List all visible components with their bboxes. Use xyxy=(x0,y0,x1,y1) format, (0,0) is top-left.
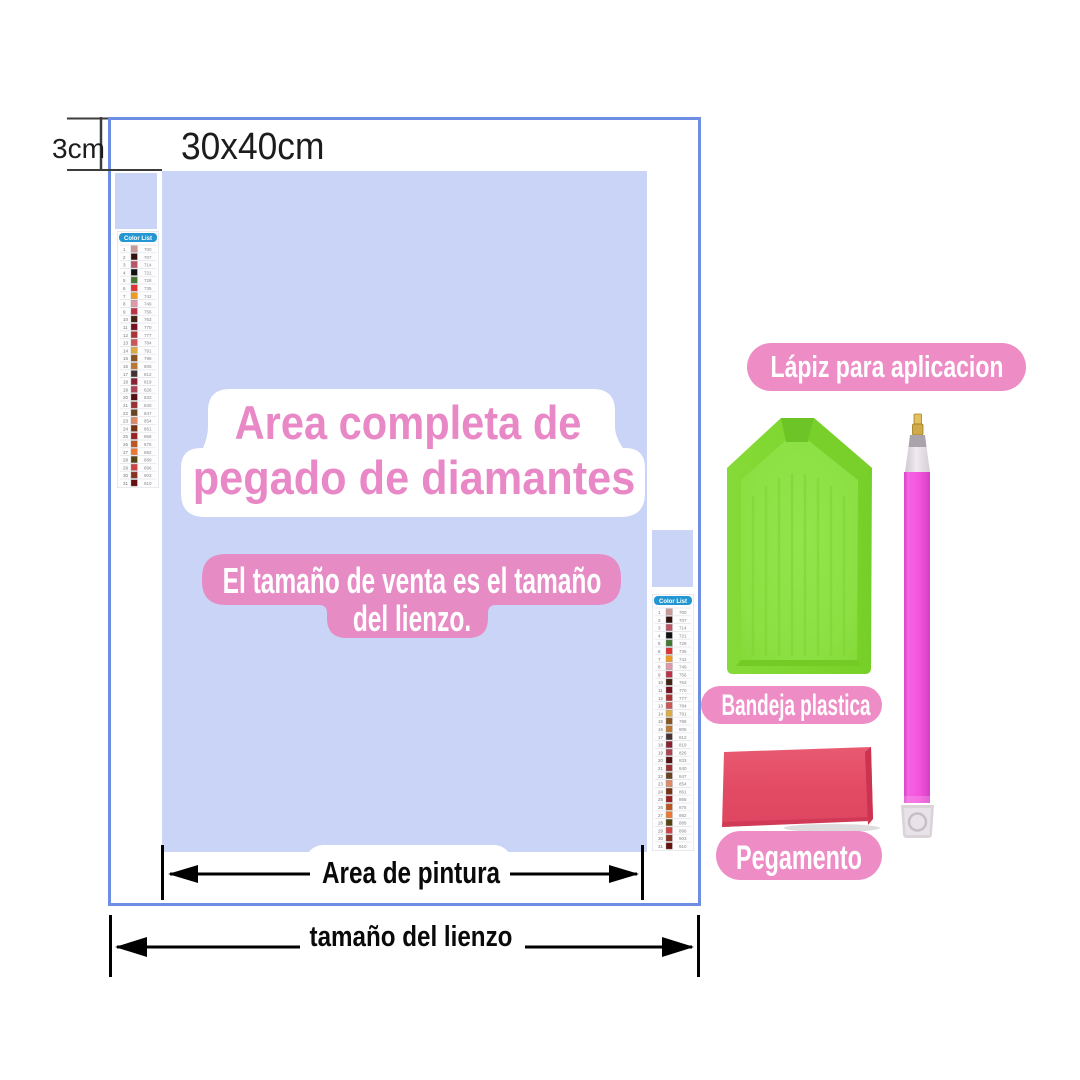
svg-text:28: 28 xyxy=(658,821,664,826)
svg-text:798: 798 xyxy=(144,356,152,361)
svg-text:20: 20 xyxy=(123,395,129,400)
svg-text:22: 22 xyxy=(658,774,664,779)
svg-text:19: 19 xyxy=(123,387,129,392)
svg-text:770: 770 xyxy=(144,325,152,330)
svg-text:805: 805 xyxy=(679,727,687,732)
svg-text:903: 903 xyxy=(144,473,152,478)
svg-text:742: 742 xyxy=(679,657,687,662)
svg-text:854: 854 xyxy=(144,419,152,424)
svg-text:735: 735 xyxy=(144,286,152,291)
svg-text:882: 882 xyxy=(679,813,687,818)
svg-text:28: 28 xyxy=(123,458,129,463)
svg-text:30: 30 xyxy=(123,473,129,478)
svg-text:721: 721 xyxy=(144,270,152,275)
svg-text:17: 17 xyxy=(123,372,129,377)
svg-text:20: 20 xyxy=(658,758,664,763)
svg-text:763: 763 xyxy=(679,680,687,685)
svg-text:29: 29 xyxy=(123,465,129,470)
svg-text:10: 10 xyxy=(123,317,129,322)
svg-text:18: 18 xyxy=(123,380,129,385)
svg-text:19: 19 xyxy=(658,750,664,755)
svg-text:840: 840 xyxy=(144,403,152,408)
svg-text:728: 728 xyxy=(144,278,152,283)
svg-text:21: 21 xyxy=(123,403,129,408)
svg-text:721: 721 xyxy=(679,633,687,638)
svg-text:700: 700 xyxy=(679,610,687,615)
svg-text:819: 819 xyxy=(144,380,152,385)
svg-text:25: 25 xyxy=(123,434,129,439)
svg-text:791: 791 xyxy=(144,348,152,353)
svg-text:17: 17 xyxy=(658,735,664,740)
svg-text:784: 784 xyxy=(144,341,152,346)
svg-text:819: 819 xyxy=(679,743,687,748)
svg-text:29: 29 xyxy=(658,828,664,833)
svg-text:23: 23 xyxy=(658,782,664,787)
svg-text:714: 714 xyxy=(144,263,152,268)
svg-text:12: 12 xyxy=(123,333,129,338)
svg-text:31: 31 xyxy=(123,481,129,486)
svg-text:896: 896 xyxy=(679,828,687,833)
svg-text:14: 14 xyxy=(123,348,129,353)
svg-text:16: 16 xyxy=(123,364,129,369)
svg-text:840: 840 xyxy=(679,766,687,771)
svg-text:777: 777 xyxy=(144,333,152,338)
svg-text:16: 16 xyxy=(658,727,664,732)
svg-text:21: 21 xyxy=(658,766,664,771)
svg-text:875: 875 xyxy=(679,805,687,810)
svg-text:18: 18 xyxy=(658,743,664,748)
svg-text:25: 25 xyxy=(658,797,664,802)
svg-text:875: 875 xyxy=(144,442,152,447)
svg-text:24: 24 xyxy=(658,789,664,794)
svg-text:812: 812 xyxy=(679,735,687,740)
svg-text:700: 700 xyxy=(144,247,152,252)
svg-text:23: 23 xyxy=(123,419,129,424)
svg-text:728: 728 xyxy=(679,641,687,646)
svg-text:22: 22 xyxy=(123,411,129,416)
svg-text:756: 756 xyxy=(144,309,152,314)
svg-text:27: 27 xyxy=(658,813,664,818)
svg-text:889: 889 xyxy=(144,458,152,463)
svg-text:26: 26 xyxy=(658,805,664,810)
svg-text:13: 13 xyxy=(123,341,129,346)
svg-text:826: 826 xyxy=(679,750,687,755)
svg-text:15: 15 xyxy=(123,356,129,361)
svg-text:868: 868 xyxy=(679,797,687,802)
svg-text:847: 847 xyxy=(144,411,152,416)
svg-text:833: 833 xyxy=(144,395,152,400)
svg-text:26: 26 xyxy=(123,442,129,447)
svg-text:868: 868 xyxy=(144,434,152,439)
svg-text:854: 854 xyxy=(679,782,687,787)
svg-text:847: 847 xyxy=(679,774,687,779)
svg-text:763: 763 xyxy=(144,317,152,322)
svg-text:714: 714 xyxy=(679,626,687,631)
svg-text:742: 742 xyxy=(144,294,152,299)
svg-text:889: 889 xyxy=(679,821,687,826)
svg-text:Color List: Color List xyxy=(124,236,152,242)
svg-text:Color List: Color List xyxy=(659,599,687,605)
svg-text:826: 826 xyxy=(144,387,152,392)
svg-text:896: 896 xyxy=(144,465,152,470)
svg-text:749: 749 xyxy=(144,302,152,307)
svg-text:10: 10 xyxy=(658,680,664,685)
svg-text:735: 735 xyxy=(679,649,687,654)
svg-text:707: 707 xyxy=(679,618,687,623)
svg-text:805: 805 xyxy=(144,364,152,369)
svg-text:11: 11 xyxy=(123,325,128,330)
svg-text:882: 882 xyxy=(144,450,152,455)
svg-text:756: 756 xyxy=(679,672,687,677)
svg-text:707: 707 xyxy=(144,255,152,260)
svg-text:24: 24 xyxy=(123,426,129,431)
svg-text:27: 27 xyxy=(123,450,129,455)
svg-text:910: 910 xyxy=(144,481,152,486)
svg-text:749: 749 xyxy=(679,665,687,670)
svg-text:861: 861 xyxy=(679,789,687,794)
svg-text:833: 833 xyxy=(679,758,687,763)
svg-text:812: 812 xyxy=(144,372,152,377)
svg-text:861: 861 xyxy=(144,426,152,431)
